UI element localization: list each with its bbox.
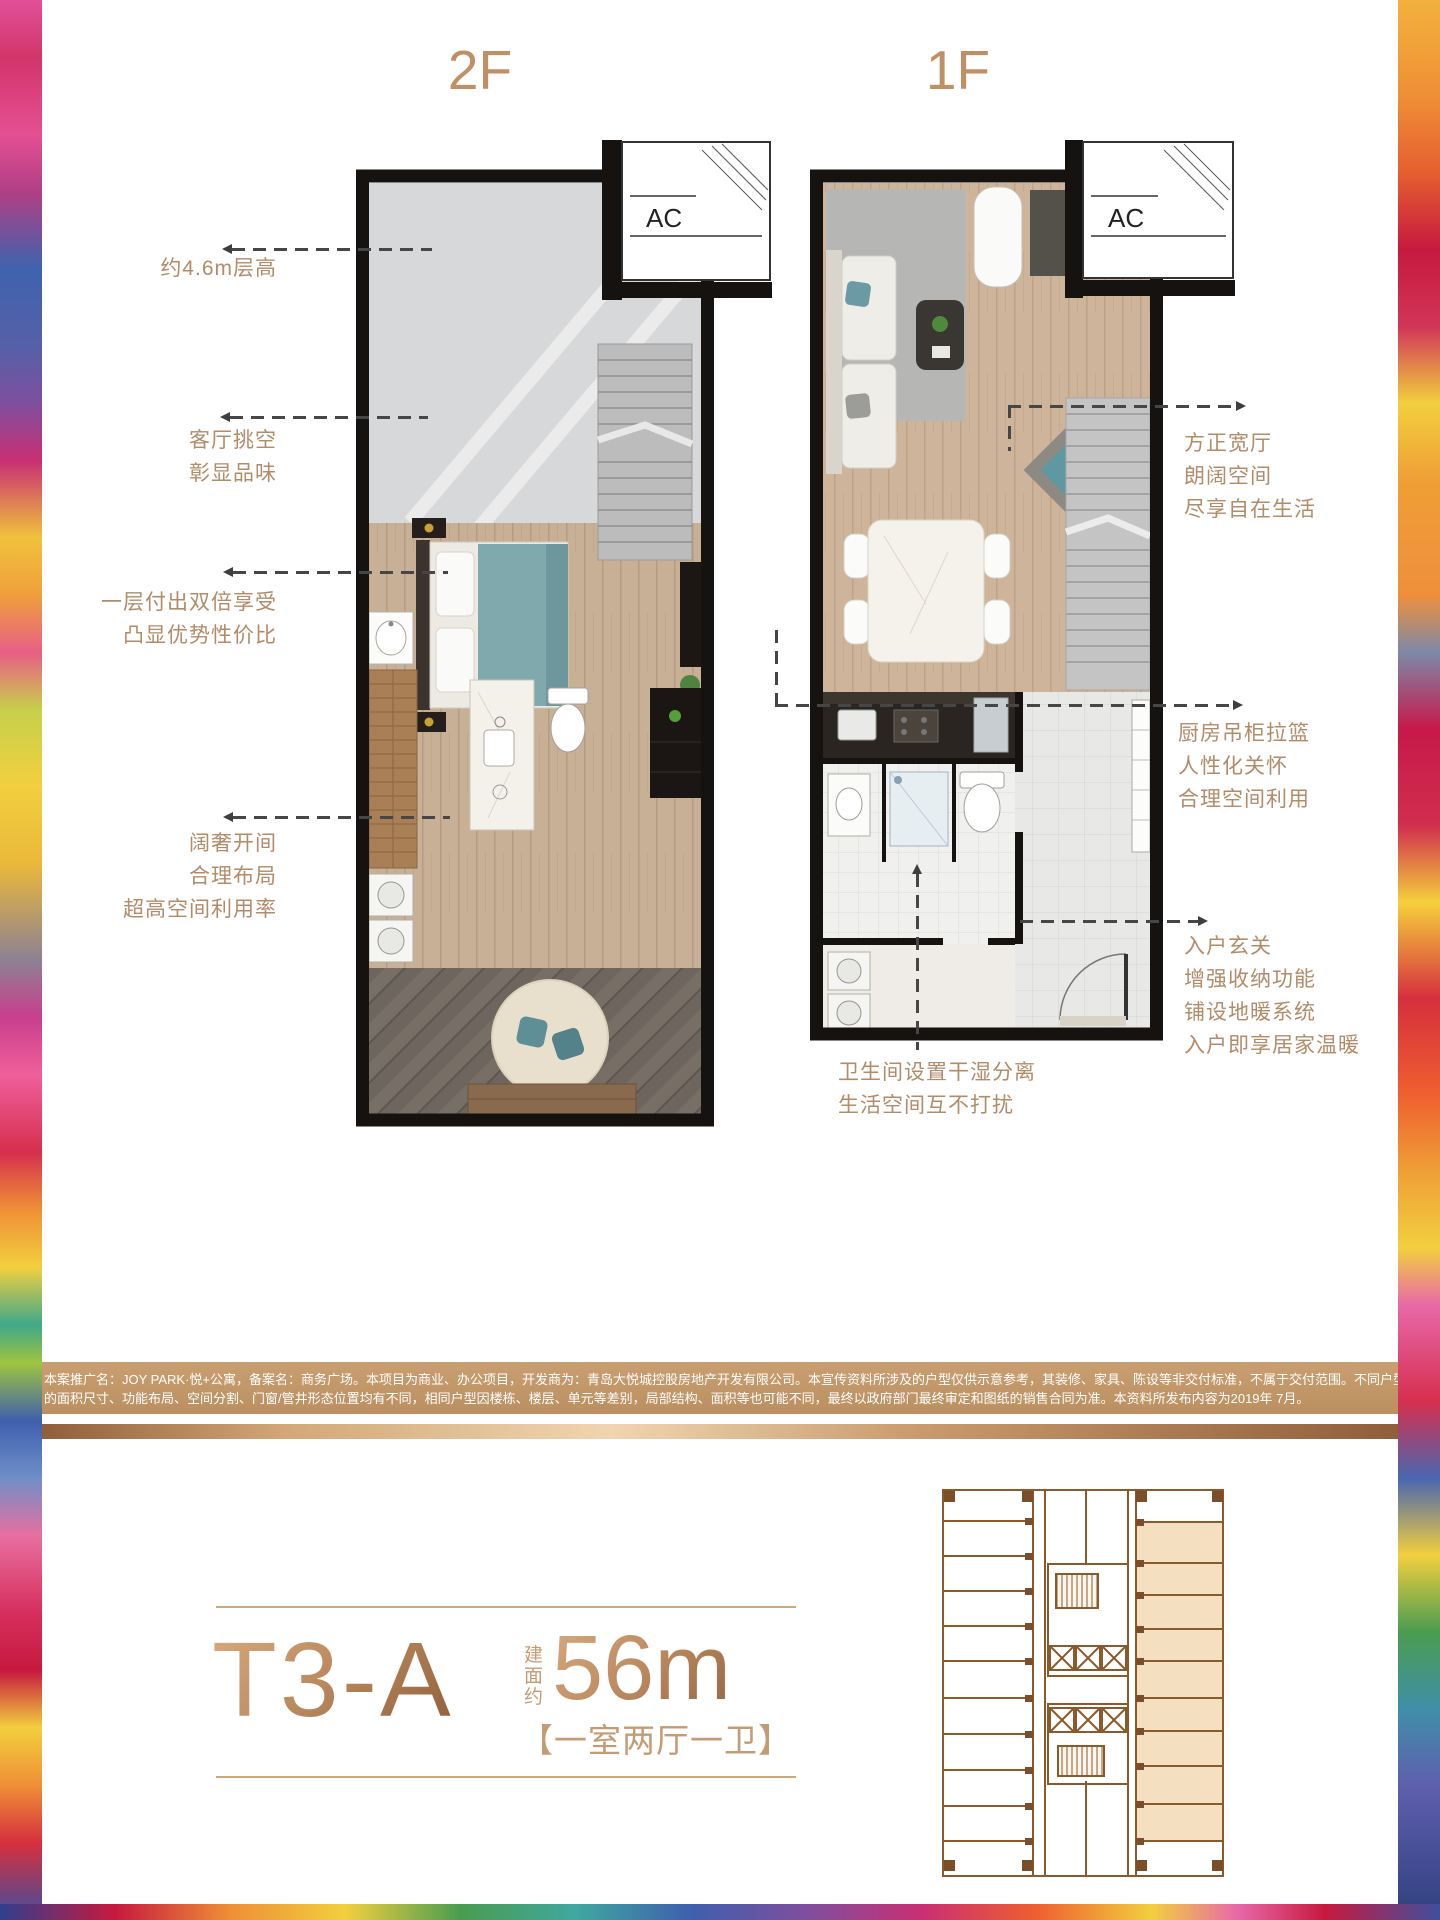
leader-entry-arrow [1198,916,1208,926]
annotation-line: 尽享自在生活 [1184,493,1316,526]
annotation-line: 彰显品味 [0,457,277,490]
annotation-line: 厨房吊柜拉篮 [1178,717,1310,750]
poster-page: 2F 1F [0,0,1440,1920]
leader-floor-height [232,248,432,251]
keyplan-floorplate [940,1486,1226,1884]
floor-label-2f: 2F [425,38,535,102]
2f-shelving [369,670,417,868]
2f-island-vanity [470,680,534,830]
leader-layout-arrow [223,812,233,822]
1f-coffee-table [916,300,964,370]
leader-void [230,416,428,419]
floor-label-1f: 1F [903,38,1013,102]
annotation-kitchen: 厨房吊柜拉篮 人性化关怀 合理空间利用 [1178,717,1310,816]
annotation-line: 超高空间利用率 [0,893,277,926]
1f-arch-cabinet [974,187,1022,287]
annotation-floor-height: 约4.6m层高 [0,252,277,285]
1f-kitchen-counter [823,692,1015,758]
unit-card-rule-bottom [216,1776,796,1778]
left-paint-border [0,0,42,1920]
2f-stairs [598,344,692,560]
leader-value-arrow [223,567,233,577]
annotation-hall: 方正宽厅 朗阔空间 尽享自在生活 [1184,427,1316,526]
annotation-line: 入户即享居家温暖 [1184,1029,1360,1062]
annotation-line: 合理空间利用 [1178,783,1310,816]
keyplan-highlight-units [1136,1522,1223,1841]
annotation-line: 约4.6m层高 [0,252,277,285]
annotation-void: 客厅挑空 彰显品味 [0,424,277,490]
disclaimer-bar: 本案推广名：JOY PARK·悦+公寓，备案名：商务广场。本项目为商业、办公项目… [42,1362,1398,1414]
annotation-entry: 入户玄关 增强收纳功能 铺设地暖系统 入户即享居家温暖 [1184,930,1360,1062]
keyplan-core-lower [1048,1704,1128,1784]
keyplan-left-units [943,1521,1033,1841]
2f-bench [468,1084,636,1114]
leader-kitchen [775,704,1233,707]
annotation-line: 一层付出双倍享受 [0,586,277,619]
annotation-line: 铺设地暖系统 [1184,996,1360,1029]
annotation-line: 增强收纳功能 [1184,963,1360,996]
disclaimer-line-1: 本案推广名：JOY PARK·悦+公寓，备案名：商务广场。本项目为商业、办公项目… [42,1370,1398,1389]
floorplan-1f: AC [798,132,1238,1047]
annotation-line: 生活空间互不打扰 [838,1089,1036,1122]
unit-model: T3-A [212,1620,454,1741]
right-paint-border [1398,0,1440,1920]
annotation-line: 朗阔空间 [1184,460,1316,493]
annotation-line: 人性化关怀 [1178,750,1310,783]
gold-divider-strip [42,1424,1398,1439]
annotation-value: 一层付出双倍享受 凸显优势性价比 [0,586,277,652]
1f-bathroom [823,758,1015,945]
2f-round-rug [492,980,608,1096]
leader-value [233,571,448,574]
annotation-line: 入户玄关 [1184,930,1360,963]
leader-entry [1020,920,1198,923]
1f-stairs [1066,398,1150,690]
floorplan-2f: AC [350,132,780,1137]
annotation-line: 阔奢开间 [0,827,277,860]
leader-hall-arrow [1236,401,1246,411]
1f-foyer [1015,692,1150,1034]
annotation-line: 方正宽厅 [1184,427,1316,460]
1f-ac-label: AC [1108,203,1144,233]
disclaimer-line-2: 的面积尺寸、功能布局、空间分割、门窗/管井形态位置均有不同，相同户型因楼栋、楼层… [42,1389,1398,1408]
unit-card-rule-top [216,1606,796,1608]
leader-bathroom [916,874,919,1050]
leader-layout [233,816,450,819]
unit-area-number: 56m [552,1617,731,1719]
2f-ac-label: AC [646,203,682,233]
2f-ac-platform: AC [602,140,772,300]
2f-washbasin [369,612,413,664]
leader-hall [1008,405,1236,408]
leader-kitchen-elbow [775,630,778,704]
2f-kitchen-cabinet [650,688,701,798]
unit-area-superscript: 2 [731,1621,757,1673]
annotation-line: 合理布局 [0,860,277,893]
leader-kitchen-arrow [1233,700,1243,710]
annotation-line: 卫生间设置干湿分离 [838,1056,1036,1089]
leader-hall-elbow [1008,405,1011,451]
annotation-bathroom: 卫生间设置干湿分离 生活空间互不打扰 [838,1056,1036,1122]
2f-toilet [548,688,588,752]
bottom-paint-border [0,1904,1440,1920]
annotation-line: 凸显优势性价比 [0,619,277,652]
annotation-layout: 阔奢开间 合理布局 超高空间利用率 [0,827,277,926]
unit-layout-label: 【一室两厅一卫】 [520,1714,792,1762]
leader-void-arrow [220,412,230,422]
1f-ac-platform: AC [1065,140,1235,298]
leader-bathroom-arrow [912,864,922,874]
keyplan-core-upper [1048,1564,1128,1676]
annotation-line: 客厅挑空 [0,424,277,457]
unit-area-value: 56m2 [552,1616,757,1721]
unit-area-label: 建面约 [524,1645,545,1708]
2f-wardrobe [680,562,701,667]
